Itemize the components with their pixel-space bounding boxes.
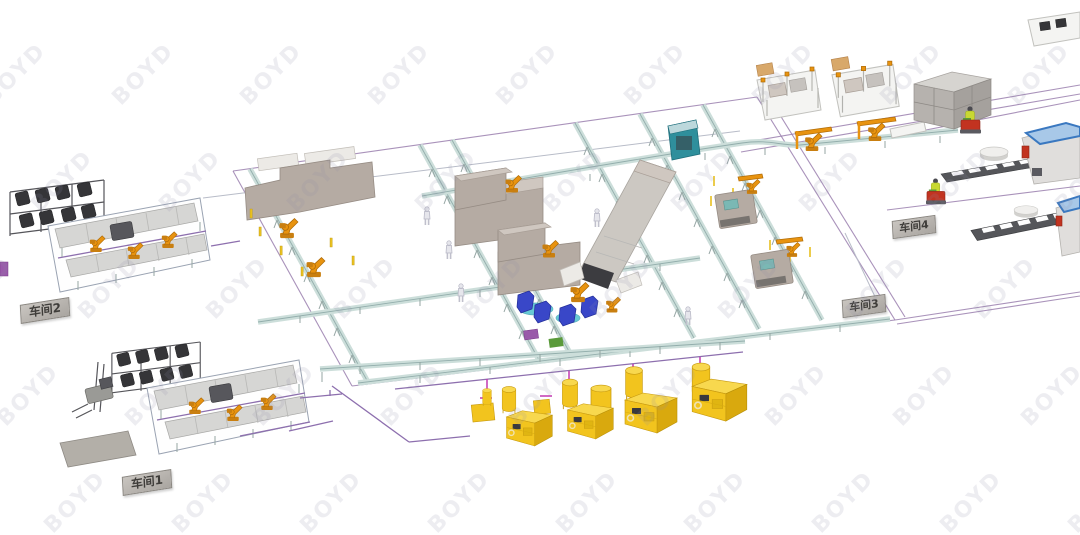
workbench-cell — [831, 57, 899, 117]
air-tank — [502, 386, 516, 413]
material-cart — [926, 178, 946, 204]
round-part — [980, 147, 1008, 161]
cross-conveyor-mid — [258, 258, 700, 323]
edge-equipment — [0, 262, 8, 276]
workshop1-area — [60, 342, 342, 467]
factory-layout-scene: 车间2 车间1 车间3 车间4 BOYDBOYDBOYDBOYDBOYDBOYD… — [0, 0, 1080, 535]
floor-slab — [60, 431, 136, 467]
paint-station — [517, 291, 598, 348]
air-compressor — [568, 404, 614, 439]
press-line-row — [245, 147, 375, 220]
forklift — [72, 362, 114, 418]
air-compressor — [507, 411, 553, 446]
cnc-machine-2 — [1056, 196, 1080, 256]
air-compressor — [625, 393, 677, 433]
air-tank — [562, 379, 577, 409]
hood-machine — [668, 120, 700, 160]
corner-rack — [1028, 12, 1080, 46]
rail-track — [941, 158, 1041, 182]
air-tank — [483, 389, 492, 406]
dryer-box — [533, 399, 550, 415]
air-compressor — [692, 379, 747, 421]
cnc-machine-1 — [1022, 123, 1080, 184]
workshop4-area — [941, 12, 1080, 256]
round-part — [1014, 206, 1038, 218]
compressor-station — [320, 341, 747, 446]
factory-3d-render — [0, 0, 1080, 535]
workshop2-area — [0, 180, 240, 292]
workbench-cell — [756, 63, 821, 120]
